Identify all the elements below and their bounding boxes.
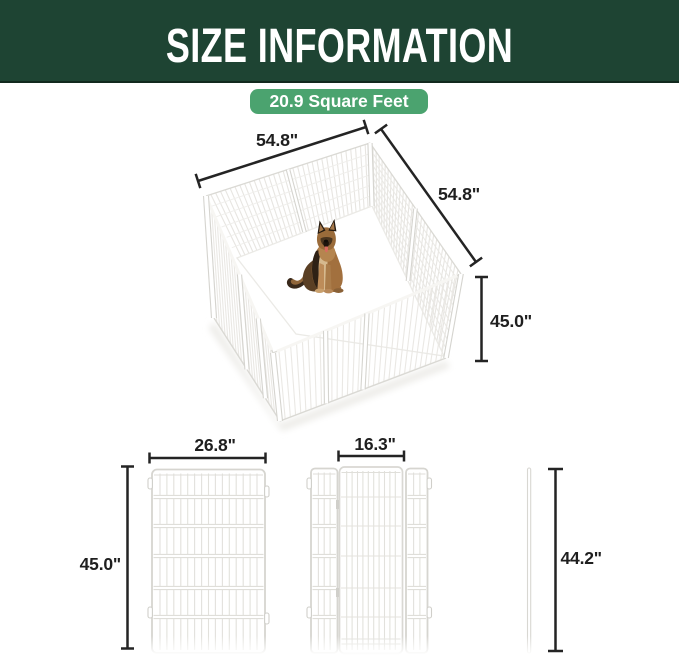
svg-text:54.8": 54.8" [438,184,480,204]
svg-text:44.2": 44.2" [561,548,602,568]
svg-text:16.3": 16.3" [354,434,395,454]
svg-text:54.8": 54.8" [256,130,298,150]
svg-text:26.8": 26.8" [194,435,235,455]
svg-text:45.0": 45.0" [80,554,121,574]
svg-text:45.0": 45.0" [490,311,532,331]
